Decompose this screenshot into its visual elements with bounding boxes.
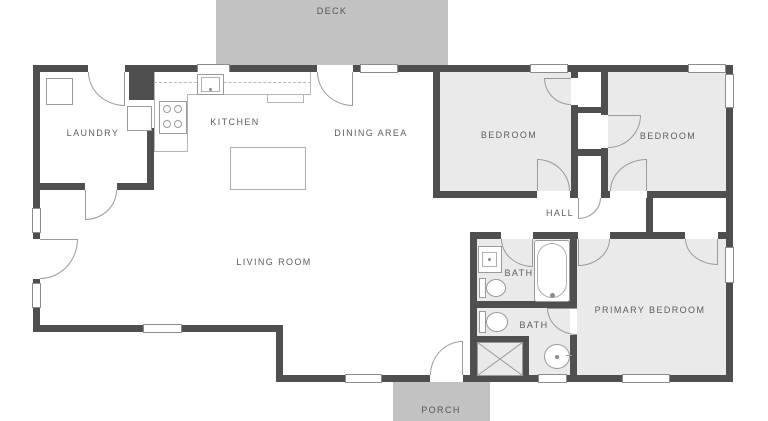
stove-burner — [163, 120, 171, 128]
deck-label: DECK — [317, 6, 348, 16]
doorway-side-entrance — [33, 239, 40, 279]
wall-laundry-block — [129, 65, 154, 100]
wall-exterior-right — [726, 65, 733, 382]
door-arc-porch — [430, 341, 463, 375]
bathtub-basin — [537, 243, 567, 298]
kitchen-counter-top — [154, 72, 311, 95]
window-living-west-1 — [32, 208, 41, 233]
kitchen-cabinet-line — [154, 82, 311, 83]
window-bedroom-right-top — [688, 64, 726, 73]
doorway-bedroom-right — [610, 191, 647, 198]
laundry-washer — [46, 78, 73, 105]
kitchen-dishwasher — [267, 94, 304, 103]
bedroom-left-label: BEDROOM — [481, 130, 537, 140]
laundry-label: LAUNDRY — [67, 128, 120, 138]
window-dining — [360, 64, 398, 73]
doorway-bedroom-left — [537, 191, 570, 198]
bath-bottom-sink-faucet — [566, 355, 572, 356]
bath-bottom-toilet-bowl — [486, 312, 508, 332]
wall-bath-divider — [470, 301, 577, 308]
hall-label: HALL — [546, 208, 574, 218]
doorway-closet-bedroom-right — [601, 115, 608, 148]
doorway-laundry-living — [85, 183, 117, 190]
doorway-laundry-exterior — [88, 65, 125, 72]
door-arc-laundry-living — [85, 190, 117, 220]
kitchen-island — [230, 147, 306, 190]
bath-top-label: BATH — [505, 268, 534, 278]
stove-burner — [163, 105, 171, 113]
door-arc-side-entrance — [40, 239, 78, 279]
stove-burner — [174, 105, 182, 113]
wall-step — [276, 325, 283, 382]
window-primary-east — [725, 247, 734, 283]
bath-bottom-sink-drain — [555, 355, 559, 359]
wall-bedroom-left-west — [433, 65, 440, 198]
doorway-primary — [578, 232, 610, 239]
kitchen-label: KITCHEN — [210, 117, 259, 127]
doorway-primary-closet — [685, 232, 718, 239]
door-arc-linen-closet — [578, 198, 601, 219]
bathtub-faucet — [550, 293, 555, 298]
bath-top-sink-faucet — [488, 258, 491, 261]
doorway-porch — [430, 375, 463, 382]
window-bath-south — [538, 374, 567, 383]
bath-bottom-label: BATH — [520, 320, 549, 330]
window-living-south-1 — [143, 324, 182, 333]
wall-shower-right — [523, 336, 529, 382]
doorway-linen-closet — [578, 191, 601, 198]
bath-top-toilet-tank — [479, 278, 486, 298]
doorway-bath-top — [501, 232, 533, 239]
wall-closet-divider-2 — [571, 149, 608, 156]
kitchen-sink-faucet — [209, 88, 212, 91]
wall-bath-right — [570, 232, 577, 382]
primary-bedroom-label: PRIMARY BEDROOM — [595, 305, 706, 315]
doorway-closet-bedroom-left — [571, 78, 578, 105]
porch-label: PORCH — [421, 405, 461, 415]
wall-laundry-right — [147, 128, 154, 190]
floor-plan: DECK PORCH LAUNDRY KITCHEN DINING AREA L… — [0, 0, 768, 421]
shower-stall — [477, 342, 523, 376]
bath-bottom-toilet-tank — [479, 311, 486, 333]
window-bedroom-right-east — [725, 74, 734, 108]
porch-area — [393, 382, 490, 421]
bedroom-right-label: BEDROOM — [640, 131, 696, 141]
living-room-label: LIVING ROOM — [236, 257, 311, 267]
dining-area-label: DINING AREA — [334, 128, 407, 138]
window-primary-south — [622, 374, 670, 383]
window-living-west-2 — [32, 283, 41, 308]
stove-burner — [174, 120, 182, 128]
door-arc-laundry-exterior — [88, 72, 125, 106]
laundry-dryer — [127, 106, 152, 131]
doorway-deck — [317, 65, 353, 72]
window-living-south-2 — [345, 374, 382, 383]
wall-closet-divider-1 — [571, 107, 608, 113]
window-bedroom-left — [530, 64, 568, 73]
door-arc-deck — [317, 72, 353, 106]
bath-top-toilet-bowl — [486, 279, 506, 297]
